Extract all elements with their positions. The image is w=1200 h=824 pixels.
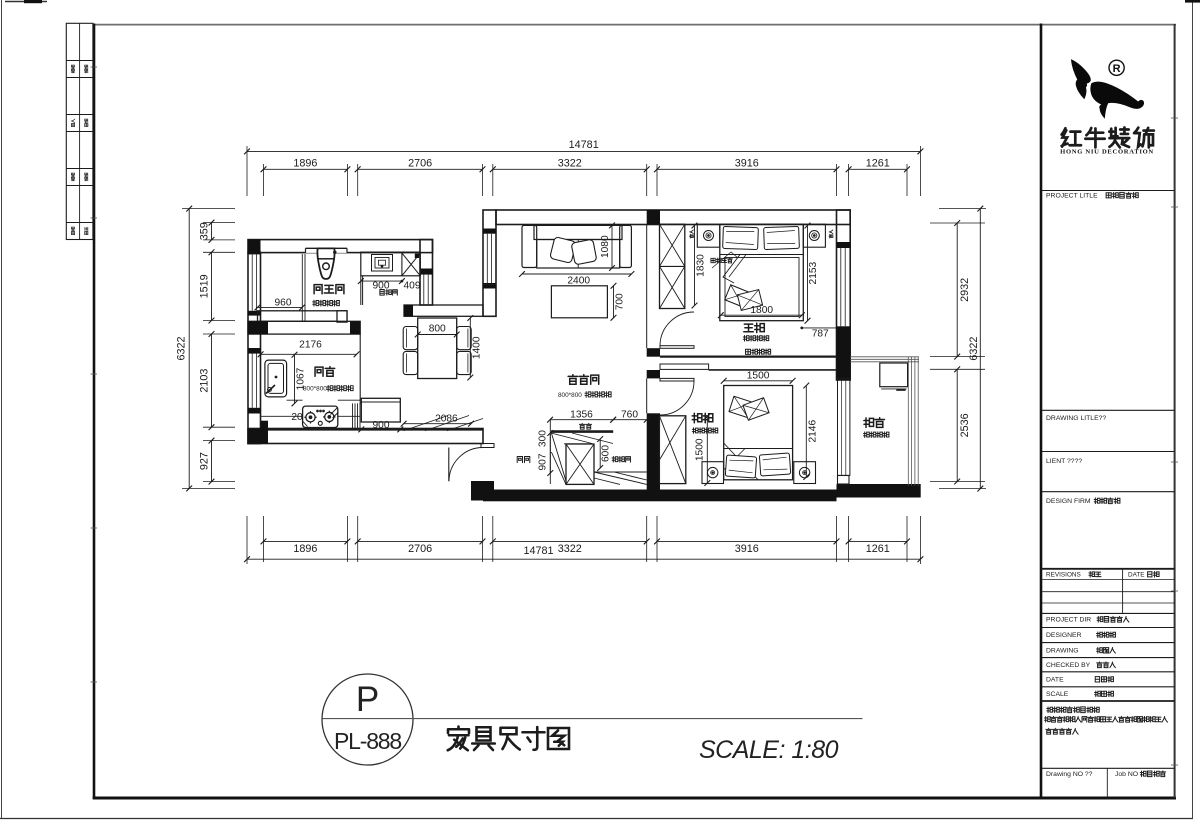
svg-text:1896: 1896 bbox=[293, 158, 317, 170]
svg-text:2103: 2103 bbox=[198, 369, 210, 393]
svg-text:700: 700 bbox=[614, 293, 625, 310]
svg-text:2400: 2400 bbox=[567, 275, 590, 286]
svg-text:REVISIONS: REVISIONS bbox=[1046, 572, 1081, 579]
svg-text:2706: 2706 bbox=[408, 543, 432, 555]
svg-text:1500: 1500 bbox=[695, 438, 706, 461]
svg-text:SCALE: 1:80: SCALE: 1:80 bbox=[699, 736, 839, 764]
svg-text:3322: 3322 bbox=[558, 543, 582, 555]
svg-text:SCALE: SCALE bbox=[1046, 691, 1069, 698]
svg-text:PROJECT DIR: PROJECT DIR bbox=[1046, 617, 1091, 624]
svg-text:2536: 2536 bbox=[959, 413, 971, 437]
svg-text:LIENT ????: LIENT ???? bbox=[1046, 458, 1082, 465]
svg-text:1356: 1356 bbox=[570, 409, 593, 420]
svg-text:20: 20 bbox=[291, 412, 303, 423]
svg-text:2706: 2706 bbox=[408, 158, 432, 170]
svg-text:14781: 14781 bbox=[523, 545, 553, 557]
svg-text:1830: 1830 bbox=[695, 254, 706, 277]
svg-text:R: R bbox=[1113, 63, 1121, 75]
svg-text:409: 409 bbox=[404, 281, 421, 292]
svg-text:800*800: 800*800 bbox=[558, 392, 582, 399]
svg-text:760: 760 bbox=[621, 409, 638, 420]
svg-text:2146: 2146 bbox=[807, 420, 818, 443]
svg-text:Drawing NO ??: Drawing NO ?? bbox=[1046, 771, 1093, 778]
svg-text:907: 907 bbox=[538, 453, 549, 470]
svg-text:DATE: DATE bbox=[1046, 677, 1064, 684]
svg-text:DRAWING LITLE??: DRAWING LITLE?? bbox=[1046, 415, 1106, 422]
svg-text:Job NO: Job NO bbox=[1115, 771, 1138, 778]
svg-text:6322: 6322 bbox=[176, 336, 188, 360]
svg-text:1261: 1261 bbox=[866, 543, 890, 555]
svg-text:3916: 3916 bbox=[735, 158, 759, 170]
svg-text:2176: 2176 bbox=[299, 340, 322, 351]
svg-text:DRAWING: DRAWING bbox=[1046, 648, 1079, 655]
svg-text:14781: 14781 bbox=[569, 139, 599, 151]
svg-text:787: 787 bbox=[812, 329, 829, 340]
svg-text:DESIGN FIRM: DESIGN FIRM bbox=[1046, 498, 1091, 505]
svg-text:960: 960 bbox=[275, 298, 292, 309]
svg-text:600: 600 bbox=[601, 445, 612, 462]
svg-text:DATE: DATE bbox=[1128, 572, 1145, 579]
svg-text:CHECKED BY: CHECKED BY bbox=[1046, 662, 1091, 669]
svg-text:1896: 1896 bbox=[293, 543, 317, 555]
svg-text:DESIGNER: DESIGNER bbox=[1046, 632, 1082, 639]
svg-text:1400: 1400 bbox=[471, 336, 482, 359]
svg-text:1800: 1800 bbox=[750, 305, 773, 316]
svg-text:300: 300 bbox=[538, 430, 549, 447]
svg-text:PL-888: PL-888 bbox=[334, 728, 401, 754]
svg-text:P: P bbox=[356, 680, 379, 719]
svg-text:6322: 6322 bbox=[968, 337, 980, 361]
svg-text:1261: 1261 bbox=[866, 158, 890, 170]
svg-text:800*800: 800*800 bbox=[303, 386, 327, 393]
svg-text:2932: 2932 bbox=[959, 278, 971, 302]
svg-text:3916: 3916 bbox=[735, 543, 759, 555]
svg-text:900: 900 bbox=[373, 420, 390, 431]
svg-text:1080: 1080 bbox=[600, 235, 611, 258]
svg-text:1500: 1500 bbox=[747, 370, 770, 381]
svg-text:PROJECT LITLE: PROJECT LITLE bbox=[1046, 193, 1098, 200]
svg-text:1519: 1519 bbox=[198, 274, 210, 298]
svg-text:927: 927 bbox=[198, 452, 210, 470]
svg-text:800: 800 bbox=[429, 324, 446, 335]
svg-text:3322: 3322 bbox=[558, 158, 582, 170]
svg-text:2153: 2153 bbox=[808, 261, 819, 284]
svg-text:359: 359 bbox=[198, 222, 210, 240]
svg-text:HONG NIU DECORATION: HONG NIU DECORATION bbox=[1060, 149, 1154, 156]
